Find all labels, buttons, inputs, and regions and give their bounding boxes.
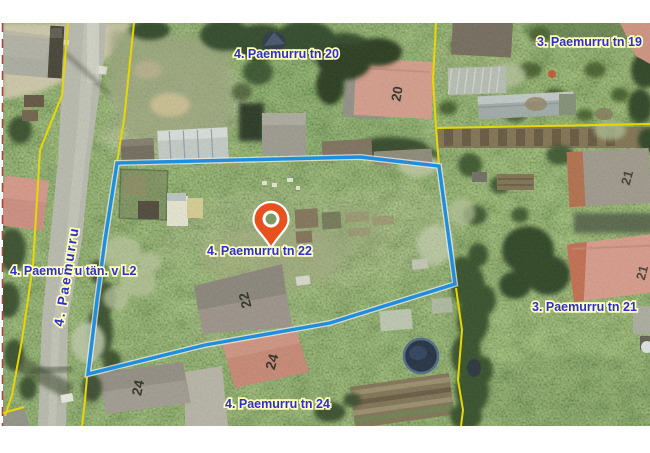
svg-text:4. Paemurru tn 20: 4. Paemurru tn 20 [234,47,339,61]
svg-text:4. Paemurru tn 24: 4. Paemurru tn 24 [225,397,330,411]
svg-text:3. Paemurru tn 19: 3. Paemurru tn 19 [537,35,642,49]
svg-text:3. Paemurru tn 21: 3. Paemurru tn 21 [532,300,637,314]
svg-text:4. Paemurru tn 22: 4. Paemurru tn 22 [207,244,312,258]
